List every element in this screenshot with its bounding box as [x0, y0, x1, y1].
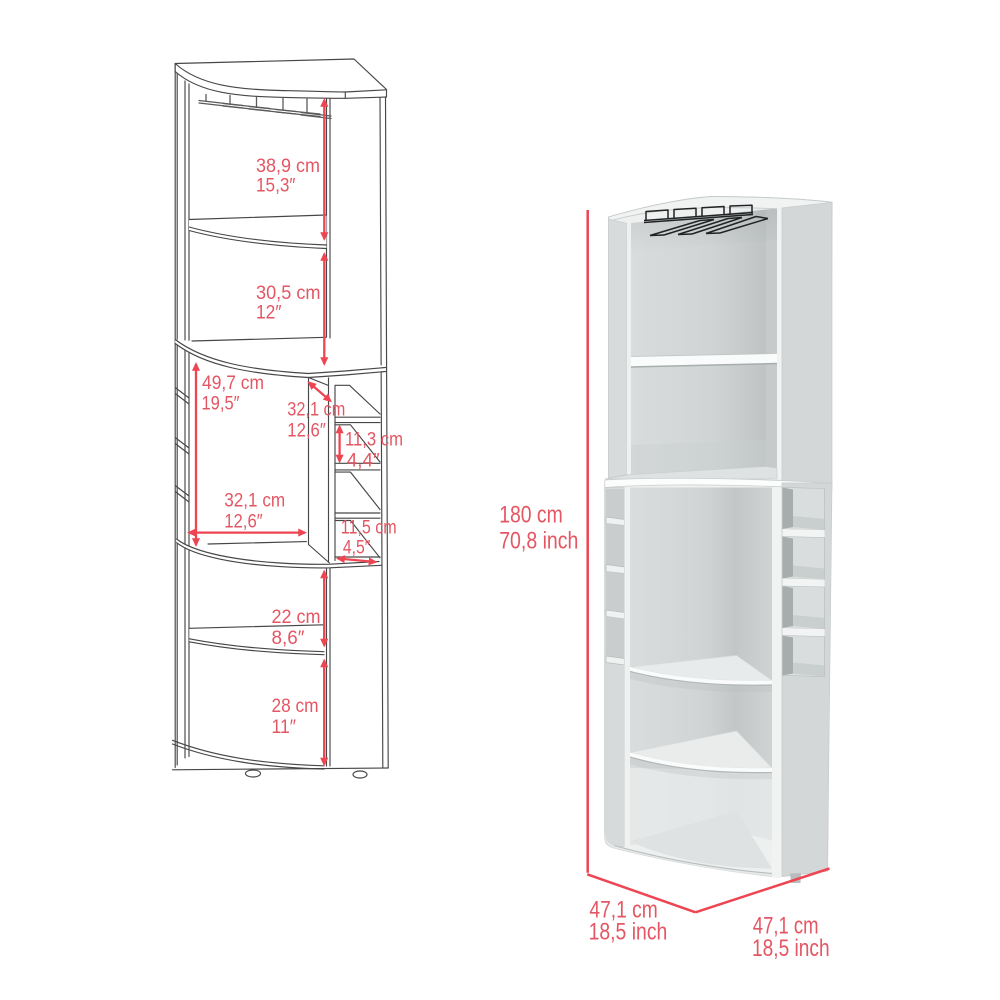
svg-text:19,5″: 19,5″: [202, 393, 240, 415]
svg-text:11,3 cm: 11,3 cm: [345, 429, 403, 451]
svg-text:4,5″: 4,5″: [343, 537, 371, 559]
svg-text:22 cm: 22 cm: [272, 606, 321, 628]
svg-text:12,6″: 12,6″: [287, 420, 326, 442]
svg-text:15,3″: 15,3″: [256, 175, 296, 197]
svg-text:12,6″: 12,6″: [224, 511, 263, 533]
svg-text:32,1 cm: 32,1 cm: [287, 399, 345, 421]
svg-text:12″: 12″: [256, 302, 282, 324]
svg-text:18,5 inch: 18,5 inch: [589, 919, 668, 946]
svg-text:70,8 inch: 70,8 inch: [499, 528, 578, 555]
svg-text:18,5 inch: 18,5 inch: [752, 935, 830, 962]
svg-text:28 cm: 28 cm: [272, 695, 319, 717]
svg-text:180 cm: 180 cm: [499, 502, 563, 529]
svg-text:49,7 cm: 49,7 cm: [202, 372, 264, 394]
svg-text:8,6″: 8,6″: [272, 627, 305, 649]
svg-text:4,4″: 4,4″: [347, 450, 380, 472]
svg-text:32,1 cm: 32,1 cm: [224, 490, 285, 512]
svg-text:11″: 11″: [272, 716, 297, 738]
svg-text:11,5 cm: 11,5 cm: [341, 517, 397, 539]
